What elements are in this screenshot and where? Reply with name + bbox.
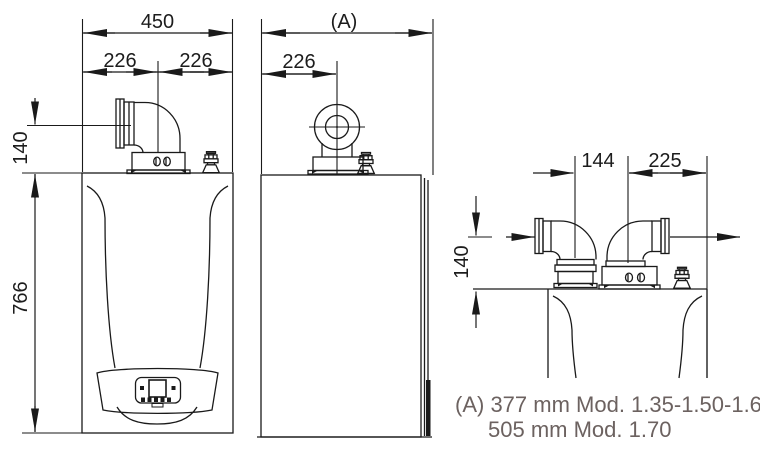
front-view: 450 226 226 140 766	[10, 11, 233, 433]
dimension-body-height: 766	[10, 174, 35, 432]
dim-label-226-right: 226	[179, 50, 212, 72]
exhaust-elbow	[599, 219, 669, 290]
twin-extension-lines	[468, 156, 707, 378]
note-line-2: 505 mm Mod. 1.70	[488, 417, 671, 442]
dim-label-450: 450	[141, 11, 174, 33]
dimension-pipe-spacing: 144 225	[533, 150, 706, 173]
dim-label-225: 225	[648, 150, 681, 172]
dimension-A-note: (A) 377 mm Mod. 1.35-1.50-1.60 505 mm Mo…	[455, 392, 760, 442]
safety-valve-front	[202, 152, 219, 173]
display-screen	[149, 380, 166, 397]
dim-label-140-twin: 140	[451, 245, 473, 278]
control-panel	[97, 369, 218, 425]
dimension-flue-height: 140	[10, 98, 35, 198]
side-extension-lines	[262, 19, 434, 175]
note-line-1: (A) 377 mm Mod. 1.35-1.50-1.60	[455, 392, 760, 417]
dim-label-226-left: 226	[103, 50, 136, 72]
dimension-flue-center-offset: 226	[262, 51, 336, 74]
dim-label-140-front: 140	[10, 131, 32, 164]
dim-label-226-side: 226	[282, 51, 315, 73]
dim-label-766: 766	[10, 281, 32, 314]
dimension-total-width: 450	[83, 11, 232, 33]
panel-bottom-cover	[117, 407, 197, 424]
twin-flue-view: 144 225 140	[451, 150, 740, 378]
safety-valve-twin	[673, 267, 690, 288]
dim-label-144: 144	[581, 150, 614, 172]
dimension-flue-height-twin: 140	[451, 196, 476, 328]
door-seal-strip	[426, 380, 431, 436]
boiler-front-outline	[82, 173, 233, 433]
diagram-canvas: 450 226 226 140 766	[0, 0, 760, 451]
front-extension-lines	[22, 19, 233, 433]
control-buttons	[141, 398, 171, 403]
boiler-top-partial-outline	[473, 289, 707, 378]
side-view: (A) 226	[257, 11, 433, 437]
boiler-dimension-diagram: 450 226 226 140 766	[0, 0, 760, 451]
intake-elbow	[535, 219, 597, 288]
boiler-side-outline	[257, 175, 432, 437]
flue-base-front	[127, 153, 190, 174]
dimension-depth-A: (A)	[262, 11, 432, 33]
dim-label-A: (A)	[331, 11, 358, 33]
